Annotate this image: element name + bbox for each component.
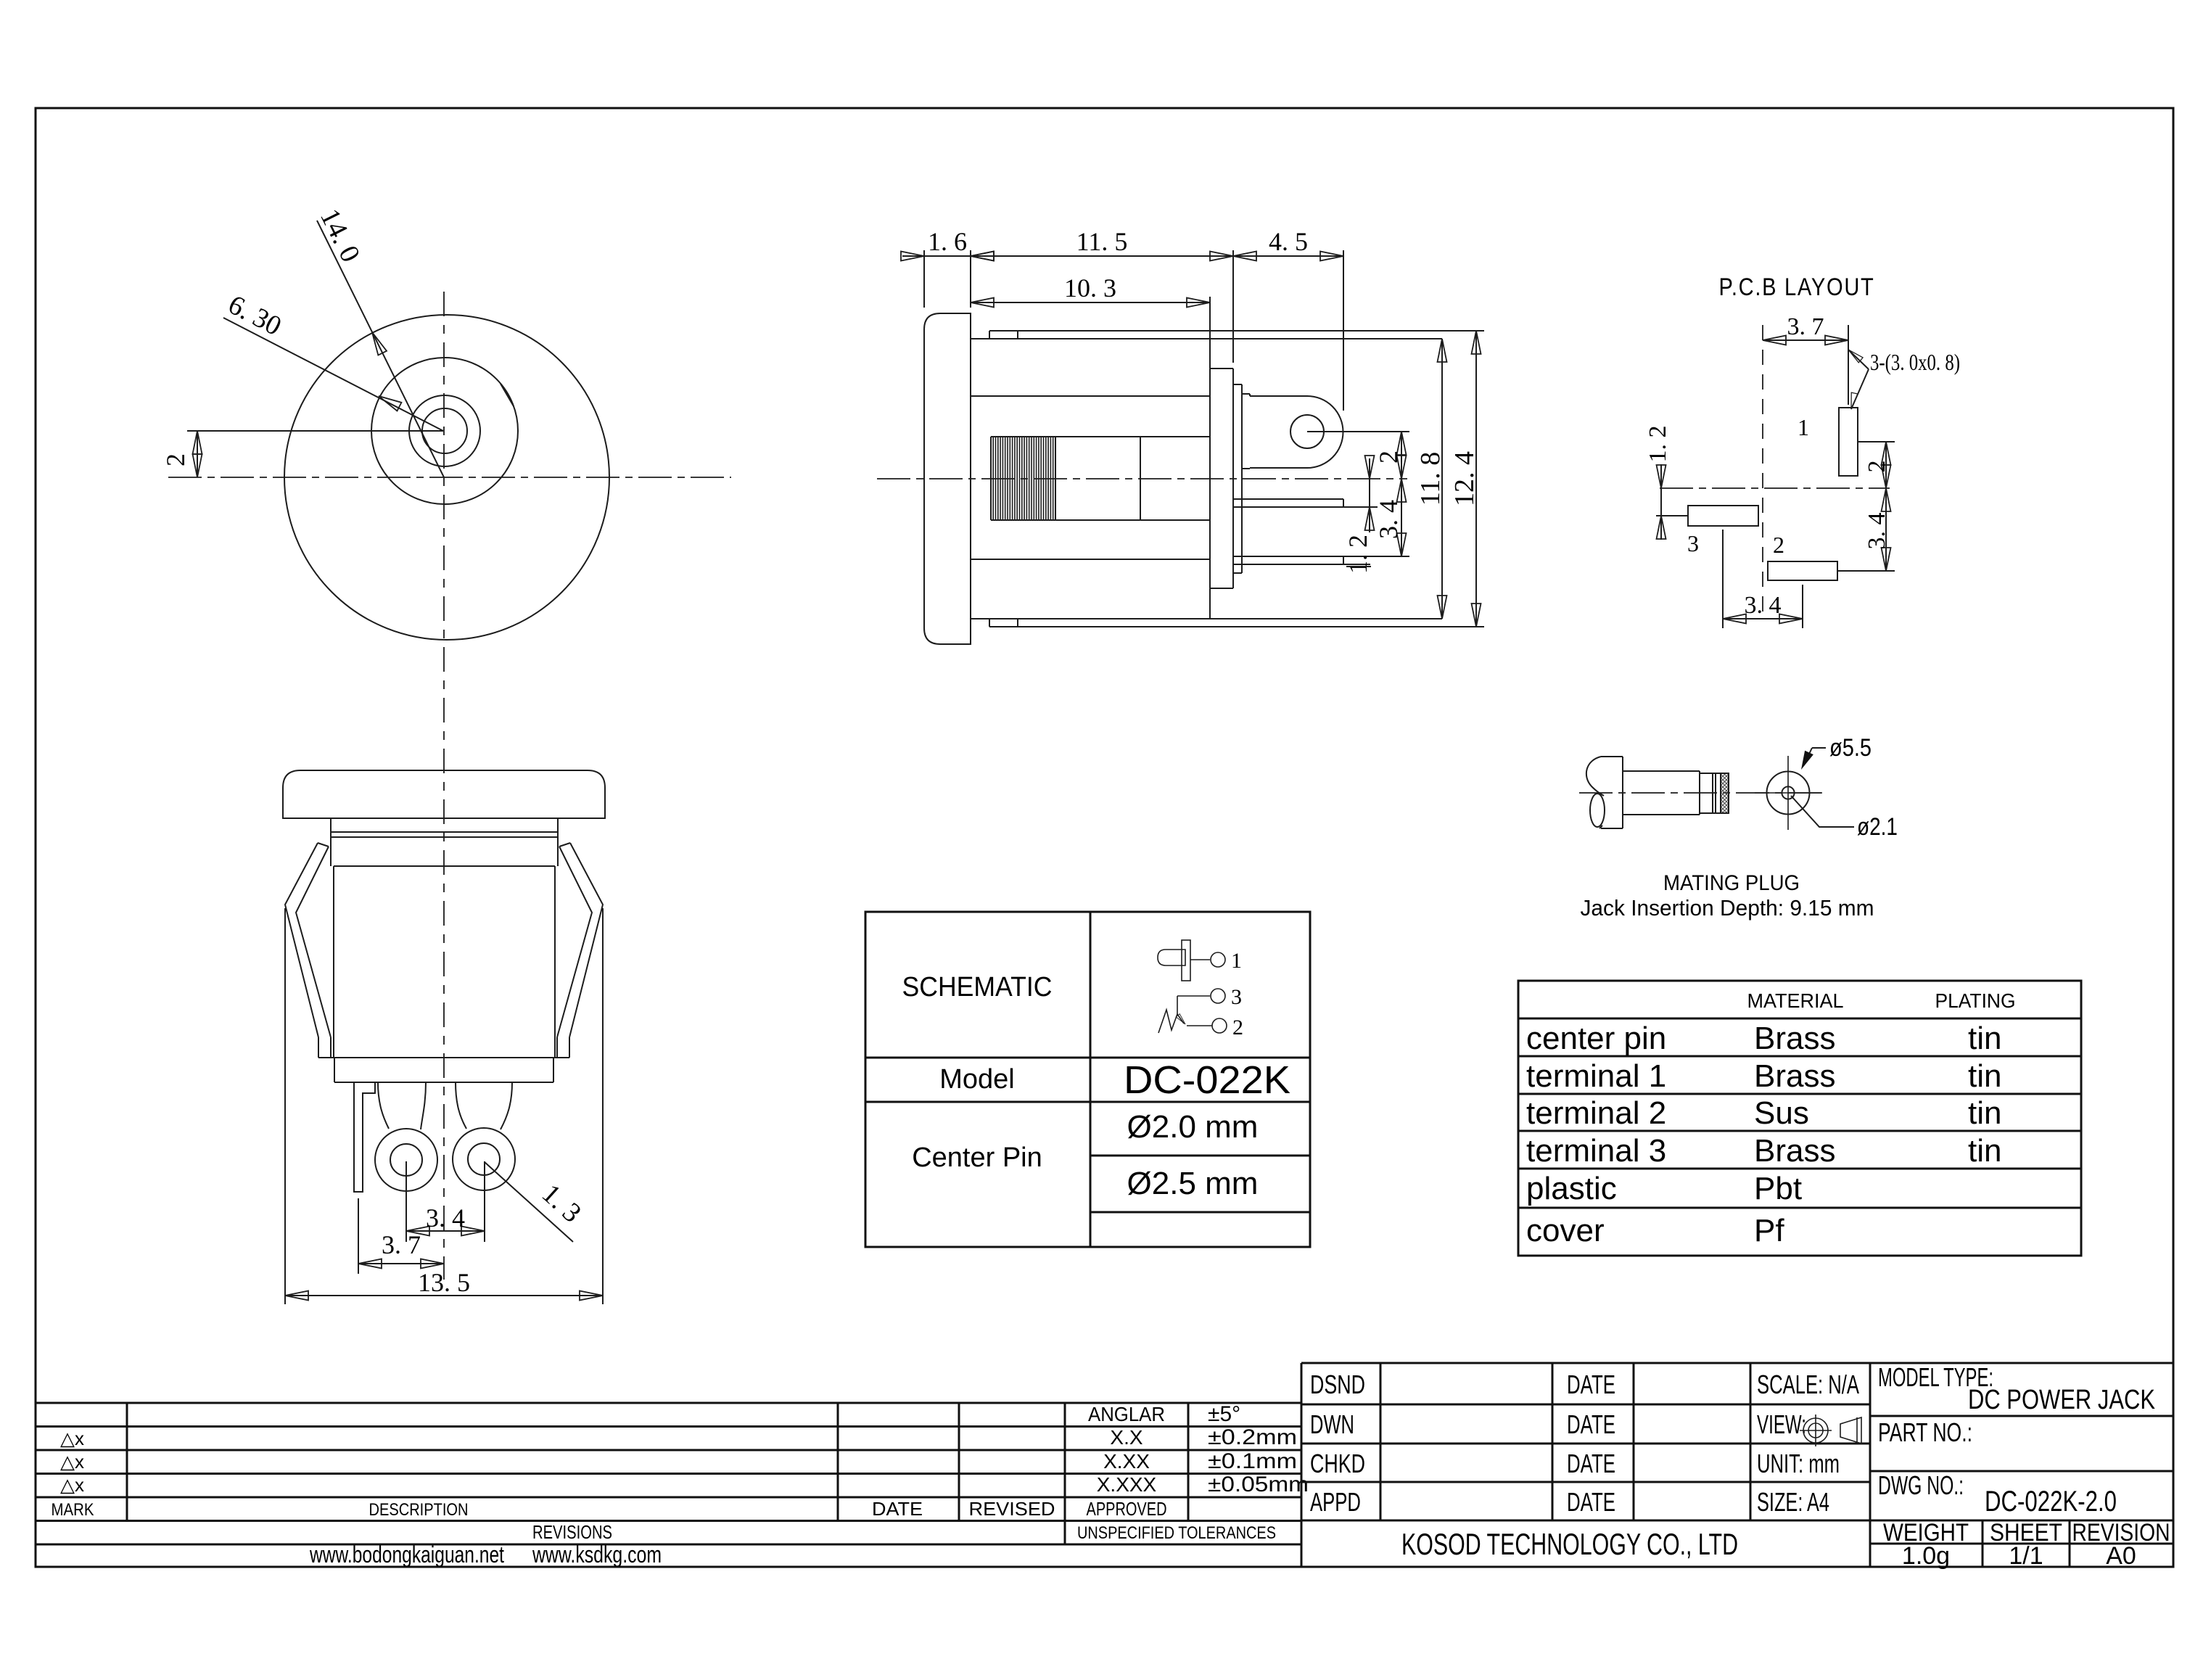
svg-text:Pbt: Pbt xyxy=(1754,1171,1802,1206)
svg-text:DSND: DSND xyxy=(1310,1370,1365,1399)
svg-text:DATE: DATE xyxy=(1567,1370,1615,1399)
svg-text:Ø2.0 mm: Ø2.0 mm xyxy=(1127,1109,1259,1145)
svg-text:SIZE: A4: SIZE: A4 xyxy=(1757,1487,1829,1517)
svg-text:±0.05mm: ±0.05mm xyxy=(1208,1473,1309,1496)
svg-text:X.XX: X.XX xyxy=(1103,1450,1150,1473)
svg-text:www.ksdkg.com: www.ksdkg.com xyxy=(532,1541,662,1568)
svg-text:DATE: DATE xyxy=(872,1498,923,1520)
svg-text:2: 2 xyxy=(1773,532,1784,558)
svg-text:CHKD: CHKD xyxy=(1310,1449,1365,1478)
svg-text:11. 8: 11. 8 xyxy=(1415,452,1446,506)
svg-text:SCALE: N/A: SCALE: N/A xyxy=(1757,1370,1859,1399)
svg-text:cover: cover xyxy=(1526,1213,1605,1248)
svg-text:2: 2 xyxy=(161,453,190,466)
svg-text:DC POWER JACK: DC POWER JACK xyxy=(1968,1385,2155,1415)
svg-text:1. 6: 1. 6 xyxy=(928,227,967,256)
svg-text:plastic: plastic xyxy=(1526,1171,1617,1206)
svg-text:4. 5: 4. 5 xyxy=(1269,227,1308,256)
svg-text:1.0g: 1.0g xyxy=(1902,1542,1950,1570)
svg-text:Brass: Brass xyxy=(1754,1058,1835,1094)
svg-text:X.XXX: X.XXX xyxy=(1097,1473,1157,1496)
svg-text:X.X: X.X xyxy=(1110,1426,1142,1449)
svg-text:DESCRIPTION: DESCRIPTION xyxy=(369,1500,469,1520)
svg-text:A0: A0 xyxy=(2106,1542,2136,1570)
svg-text:3. 4: 3. 4 xyxy=(1864,513,1890,550)
svg-text:PART NO.:: PART NO.: xyxy=(1878,1417,1972,1447)
svg-text:1. 2: 1. 2 xyxy=(1343,535,1372,574)
svg-text:ø5.5: ø5.5 xyxy=(1829,734,1872,762)
svg-text:±0.2mm: ±0.2mm xyxy=(1208,1425,1297,1449)
svg-text:REVISED: REVISED xyxy=(969,1498,1055,1520)
svg-text:3. 7: 3. 7 xyxy=(1787,313,1824,340)
svg-text:DC-022K-2.0: DC-022K-2.0 xyxy=(1985,1486,2117,1518)
svg-text:2: 2 xyxy=(1864,461,1890,473)
svg-text:DWG NO.:: DWG NO.: xyxy=(1878,1470,1964,1500)
svg-text:Sus: Sus xyxy=(1754,1095,1809,1131)
svg-text:1. 2: 1. 2 xyxy=(1644,426,1671,463)
svg-text:UNSPECIFIED TOLERANCES: UNSPECIFIED TOLERANCES xyxy=(1077,1523,1276,1543)
svg-text:Pf: Pf xyxy=(1754,1213,1784,1248)
svg-text:11. 5: 11. 5 xyxy=(1076,227,1128,256)
svg-text:2: 2 xyxy=(1374,450,1403,464)
svg-text:Ø2.5 mm: Ø2.5 mm xyxy=(1127,1166,1259,1201)
svg-text:△x: △x xyxy=(60,1451,84,1473)
svg-text:10. 3: 10. 3 xyxy=(1064,273,1116,302)
svg-text:tin: tin xyxy=(1968,1095,2001,1131)
svg-text:Brass: Brass xyxy=(1754,1133,1835,1169)
svg-text:ANGLAR: ANGLAR xyxy=(1088,1403,1165,1425)
svg-text:terminal 1: terminal 1 xyxy=(1526,1058,1666,1094)
svg-text:12. 4: 12. 4 xyxy=(1449,451,1480,506)
svg-text:tin: tin xyxy=(1968,1133,2001,1169)
svg-text:2: 2 xyxy=(1232,1016,1243,1039)
svg-text:MATING PLUG: MATING PLUG xyxy=(1663,871,1800,895)
svg-text:1: 1 xyxy=(1798,414,1809,440)
svg-text:3. 7: 3. 7 xyxy=(382,1230,421,1259)
svg-text:DATE: DATE xyxy=(1567,1409,1615,1439)
svg-text:SCHEMATIC: SCHEMATIC xyxy=(902,972,1053,1002)
svg-text:UNIT: mm: UNIT: mm xyxy=(1757,1449,1840,1478)
svg-text:ø2.1: ø2.1 xyxy=(1857,813,1898,841)
svg-text:DWN: DWN xyxy=(1310,1409,1354,1439)
svg-text:3: 3 xyxy=(1231,985,1242,1009)
svg-text:tin: tin xyxy=(1968,1058,2001,1094)
svg-text:PLATING: PLATING xyxy=(1935,989,2016,1012)
svg-text:DATE: DATE xyxy=(1567,1449,1615,1478)
svg-text:Model: Model xyxy=(939,1064,1015,1095)
svg-text:APPD: APPD xyxy=(1310,1487,1361,1517)
svg-text:3. 4: 3. 4 xyxy=(426,1203,465,1232)
svg-text:MATERIAL: MATERIAL xyxy=(1747,989,1844,1012)
svg-text:3. 4: 3. 4 xyxy=(1374,500,1403,539)
svg-text:center pin: center pin xyxy=(1526,1021,1666,1056)
svg-text:3. 4: 3. 4 xyxy=(1745,592,1782,619)
svg-text:www.bodongkaiguan.net: www.bodongkaiguan.net xyxy=(309,1541,504,1568)
svg-text:KOSOD TECHNOLOGY CO., LTD: KOSOD TECHNOLOGY CO., LTD xyxy=(1401,1527,1738,1561)
svg-text:REVISIONS: REVISIONS xyxy=(532,1521,612,1543)
svg-text:VIEW:: VIEW: xyxy=(1757,1409,1806,1439)
svg-text:Center Pin: Center Pin xyxy=(912,1142,1042,1173)
svg-text:Brass: Brass xyxy=(1754,1021,1835,1056)
svg-text:tin: tin xyxy=(1968,1021,2001,1056)
svg-text:DC-022K: DC-022K xyxy=(1124,1058,1290,1102)
svg-text:1/1: 1/1 xyxy=(2009,1542,2043,1570)
svg-text:1: 1 xyxy=(1231,949,1242,973)
svg-text:terminal 3: terminal 3 xyxy=(1526,1133,1666,1169)
svg-text:DATE: DATE xyxy=(1567,1487,1615,1517)
svg-text:±5°: ±5° xyxy=(1208,1402,1240,1426)
svg-text:MARK: MARK xyxy=(52,1500,94,1520)
svg-text:13. 5: 13. 5 xyxy=(418,1268,470,1297)
svg-text:terminal 2: terminal 2 xyxy=(1526,1095,1666,1131)
svg-text:P.C.B LAYOUT: P.C.B LAYOUT xyxy=(1719,273,1875,301)
svg-text:△x: △x xyxy=(60,1428,84,1449)
svg-text:3: 3 xyxy=(1687,530,1699,556)
svg-text:3-(3. 0x0. 8): 3-(3. 0x0. 8) xyxy=(1870,349,1960,375)
svg-text:±0.1mm: ±0.1mm xyxy=(1208,1449,1297,1473)
svg-text:△x: △x xyxy=(60,1474,84,1496)
svg-text:Jack Insertion Depth: 9.15 mm: Jack Insertion Depth: 9.15 mm xyxy=(1581,895,1874,921)
svg-text:APPROVED: APPROVED xyxy=(1087,1498,1167,1520)
